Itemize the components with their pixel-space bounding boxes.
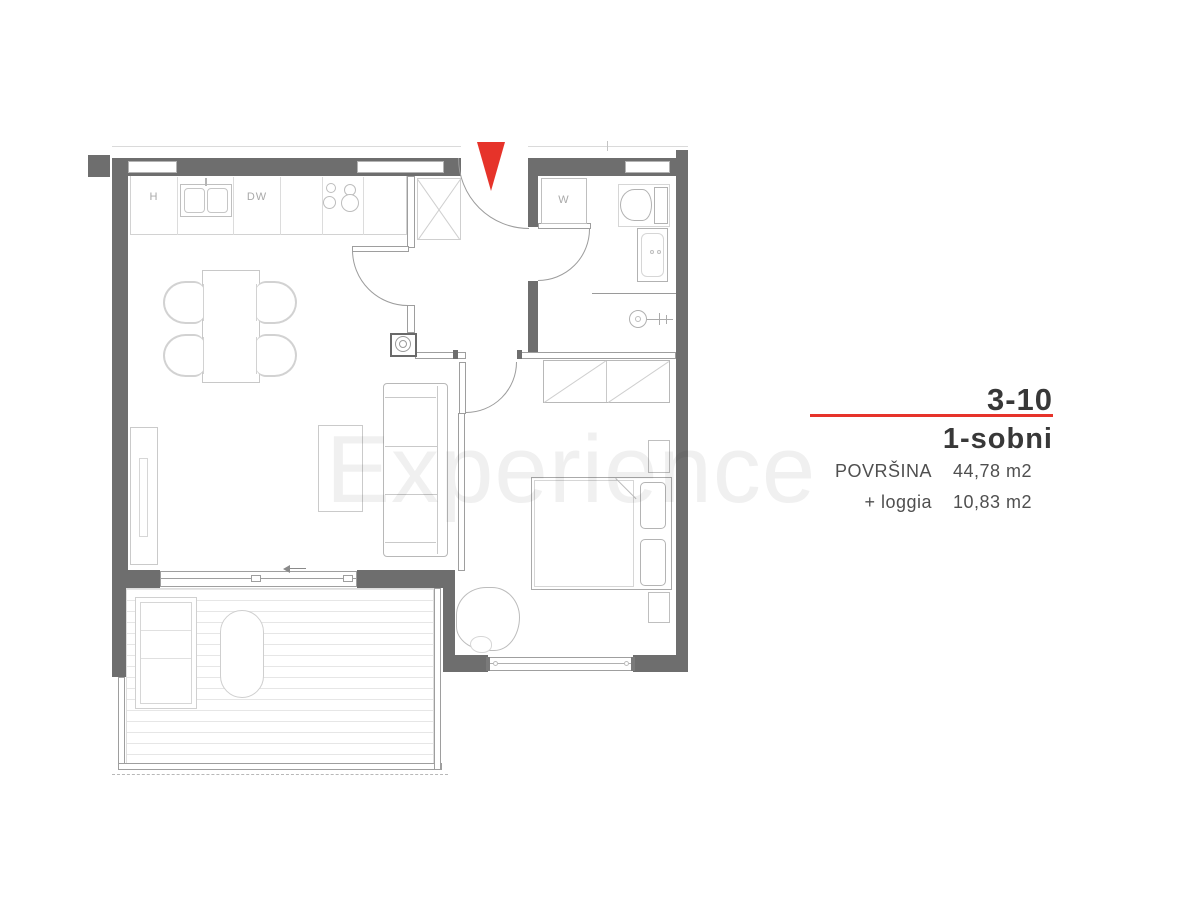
entrance-arrow-icon (477, 142, 505, 191)
pillow (640, 539, 666, 586)
window-cap (631, 657, 635, 671)
toilet-bowl (620, 189, 652, 221)
kitchen-counter (130, 176, 407, 235)
dining-chair (256, 334, 297, 377)
washing-machine-label: W (541, 194, 587, 206)
counter-divider (280, 177, 281, 235)
floor-plan-page: H DW W (0, 0, 1200, 900)
wall-bedroom-west (443, 588, 455, 658)
wall-cap (453, 350, 458, 359)
dining-chair (163, 281, 204, 324)
roof-line-left (112, 146, 461, 147)
dimension-tick (607, 141, 608, 151)
shower-partition (592, 293, 676, 294)
sliding-door-handle (343, 575, 353, 582)
wall-bedroom-south-left (443, 655, 488, 672)
plant-lobe (470, 636, 492, 653)
counter-divider (322, 177, 323, 235)
sink-bowl (207, 188, 228, 213)
shower-valve-tick (659, 313, 660, 325)
wall-living-south-right (357, 570, 455, 588)
slide-direction-line (290, 568, 306, 569)
window-top-left (128, 161, 177, 173)
loggia-railing-bottom (118, 763, 442, 770)
wall-bathroom-west-upper (528, 158, 538, 227)
counter-divider (363, 177, 364, 235)
chair-seat-line (256, 284, 257, 321)
stove-burner (341, 194, 359, 212)
area-value: 44,78 m2 (953, 461, 1063, 482)
loggia-value: 10,83 m2 (953, 492, 1063, 513)
bedroom-door-leaf (459, 362, 466, 414)
chair-seat-line (203, 337, 204, 374)
dining-chair (163, 334, 204, 377)
unit-code: 3-10 (810, 382, 1053, 418)
sofa-arm-line (385, 542, 436, 543)
sink-bowl (184, 188, 205, 213)
sink-tap (205, 178, 207, 186)
chair-seat-line (203, 284, 204, 321)
wall-kitchen-partition-upper (407, 176, 415, 248)
stove-burner (326, 183, 336, 193)
vent-shaft-core (399, 340, 407, 348)
shower-valve-tick (666, 315, 667, 324)
slide-direction-arrow-icon (283, 565, 290, 573)
area-label: POVRŠINA (760, 461, 932, 482)
wall-bathroom-west-lower (528, 281, 538, 352)
loggia-edge-dashed-line (112, 774, 448, 775)
chair-seat-line (256, 337, 257, 374)
wall-corner-block-top-left (88, 155, 110, 177)
counter-divider (233, 177, 234, 235)
window-end-dot (493, 661, 498, 666)
stove-burner (323, 196, 336, 209)
watermark: Experience (326, 415, 816, 525)
wall-cap (517, 350, 522, 359)
window-end-dot (624, 661, 629, 666)
wall-living-south-left (112, 570, 160, 588)
dishwasher-label: DW (237, 191, 277, 203)
wall-hall-south-west (415, 352, 466, 359)
wall-hall-south-east (517, 352, 676, 359)
lounger-slat (141, 658, 191, 659)
sink-faucet-dot (650, 250, 654, 254)
living-door-leaf (352, 246, 409, 252)
tv-screen (139, 458, 148, 537)
loggia-railing-right (434, 588, 441, 770)
bedroom-window-glazing (488, 663, 633, 664)
fridge-label: H (134, 191, 174, 203)
window-cap (486, 657, 490, 671)
wall-bedroom-south-right (633, 655, 688, 672)
bathroom-sink-basin (641, 233, 664, 277)
wall-right (676, 150, 688, 672)
loggia-table (220, 610, 264, 698)
counter-divider (177, 177, 178, 235)
sink-faucet-dot (657, 250, 661, 254)
toilet-tank (654, 187, 668, 224)
dining-chair (256, 281, 297, 324)
wardrobe-divider (606, 361, 607, 402)
window-top-right (625, 161, 670, 173)
wall-kitchen-partition-lower (407, 305, 415, 333)
loggia-label: + loggia (760, 492, 932, 513)
lounger-slat (141, 630, 191, 631)
unit-type: 1-sobni (810, 423, 1053, 456)
dining-table (202, 270, 260, 383)
accent-underline (810, 414, 1053, 417)
loggia-railing-left (118, 677, 125, 770)
bedroom-window (488, 657, 633, 671)
sun-lounger-inner (140, 602, 192, 704)
sofa-arm-line (385, 397, 436, 398)
nightstand (648, 592, 670, 623)
shower-arm (647, 319, 673, 320)
sliding-door-handle (251, 575, 261, 582)
shower-drain-core (635, 316, 641, 322)
roof-line-right (528, 146, 688, 147)
window-top-middle (357, 161, 444, 173)
